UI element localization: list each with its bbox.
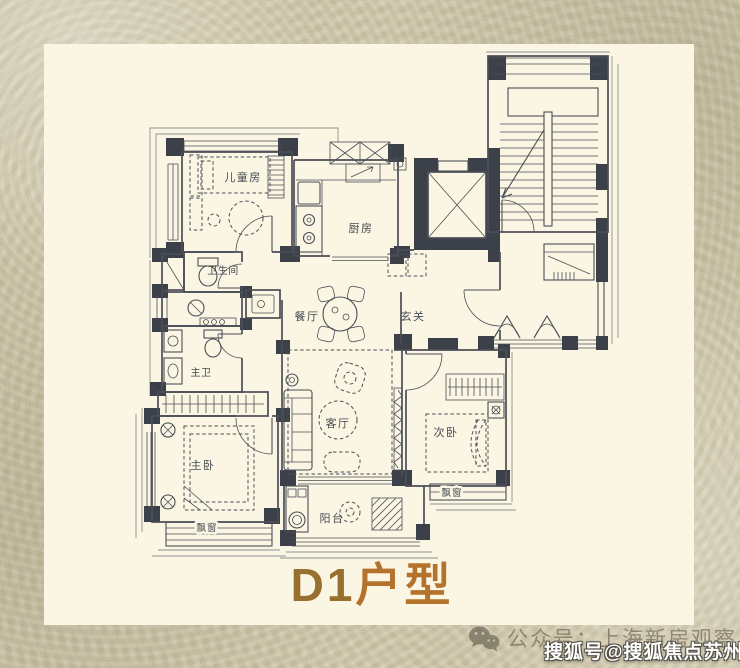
sohu-watermark: 搜狐号@搜狐焦点苏州站 [544,637,740,664]
room-label-bay-window-right: 飘窗 [441,487,462,499]
room-label-bay-window-left: 飘窗 [196,522,217,534]
room-label-kitchen: 厨房 [349,222,374,235]
staircase [488,56,608,232]
wall-columns [144,56,608,546]
plan-title-suffix: 户型 [355,559,453,611]
wechat-icon [468,625,500,652]
room-label-children: 儿童房 [224,170,262,184]
hall-cabinet [544,244,594,280]
room-label-entry: 玄关 [401,309,426,323]
floorplan-image: 儿童房 厨房 卫生间 主卫 餐厅 玄关 客厅 主卧 次卧 阳台 飘窗 飘窗 D1… [0,0,740,668]
landing-fittings [494,244,594,338]
plan-title: D1户型 [222,560,522,611]
windows [147,141,596,546]
room-label-dining: 餐厅 [295,309,320,323]
room-label-living: 客厅 [326,416,351,430]
plan-title-code: D1 [291,559,356,611]
room-label-bathroom: 卫生间 [207,264,239,277]
room-label-second-bedroom: 次卧 [434,425,459,439]
room-label-master-bath: 主卫 [191,367,212,379]
room-label-balcony: 阳台 [320,511,345,525]
room-walls [152,152,604,530]
room-label-master-bedroom: 主卧 [191,459,216,472]
casement-windows [494,316,560,338]
elevator [428,161,486,238]
